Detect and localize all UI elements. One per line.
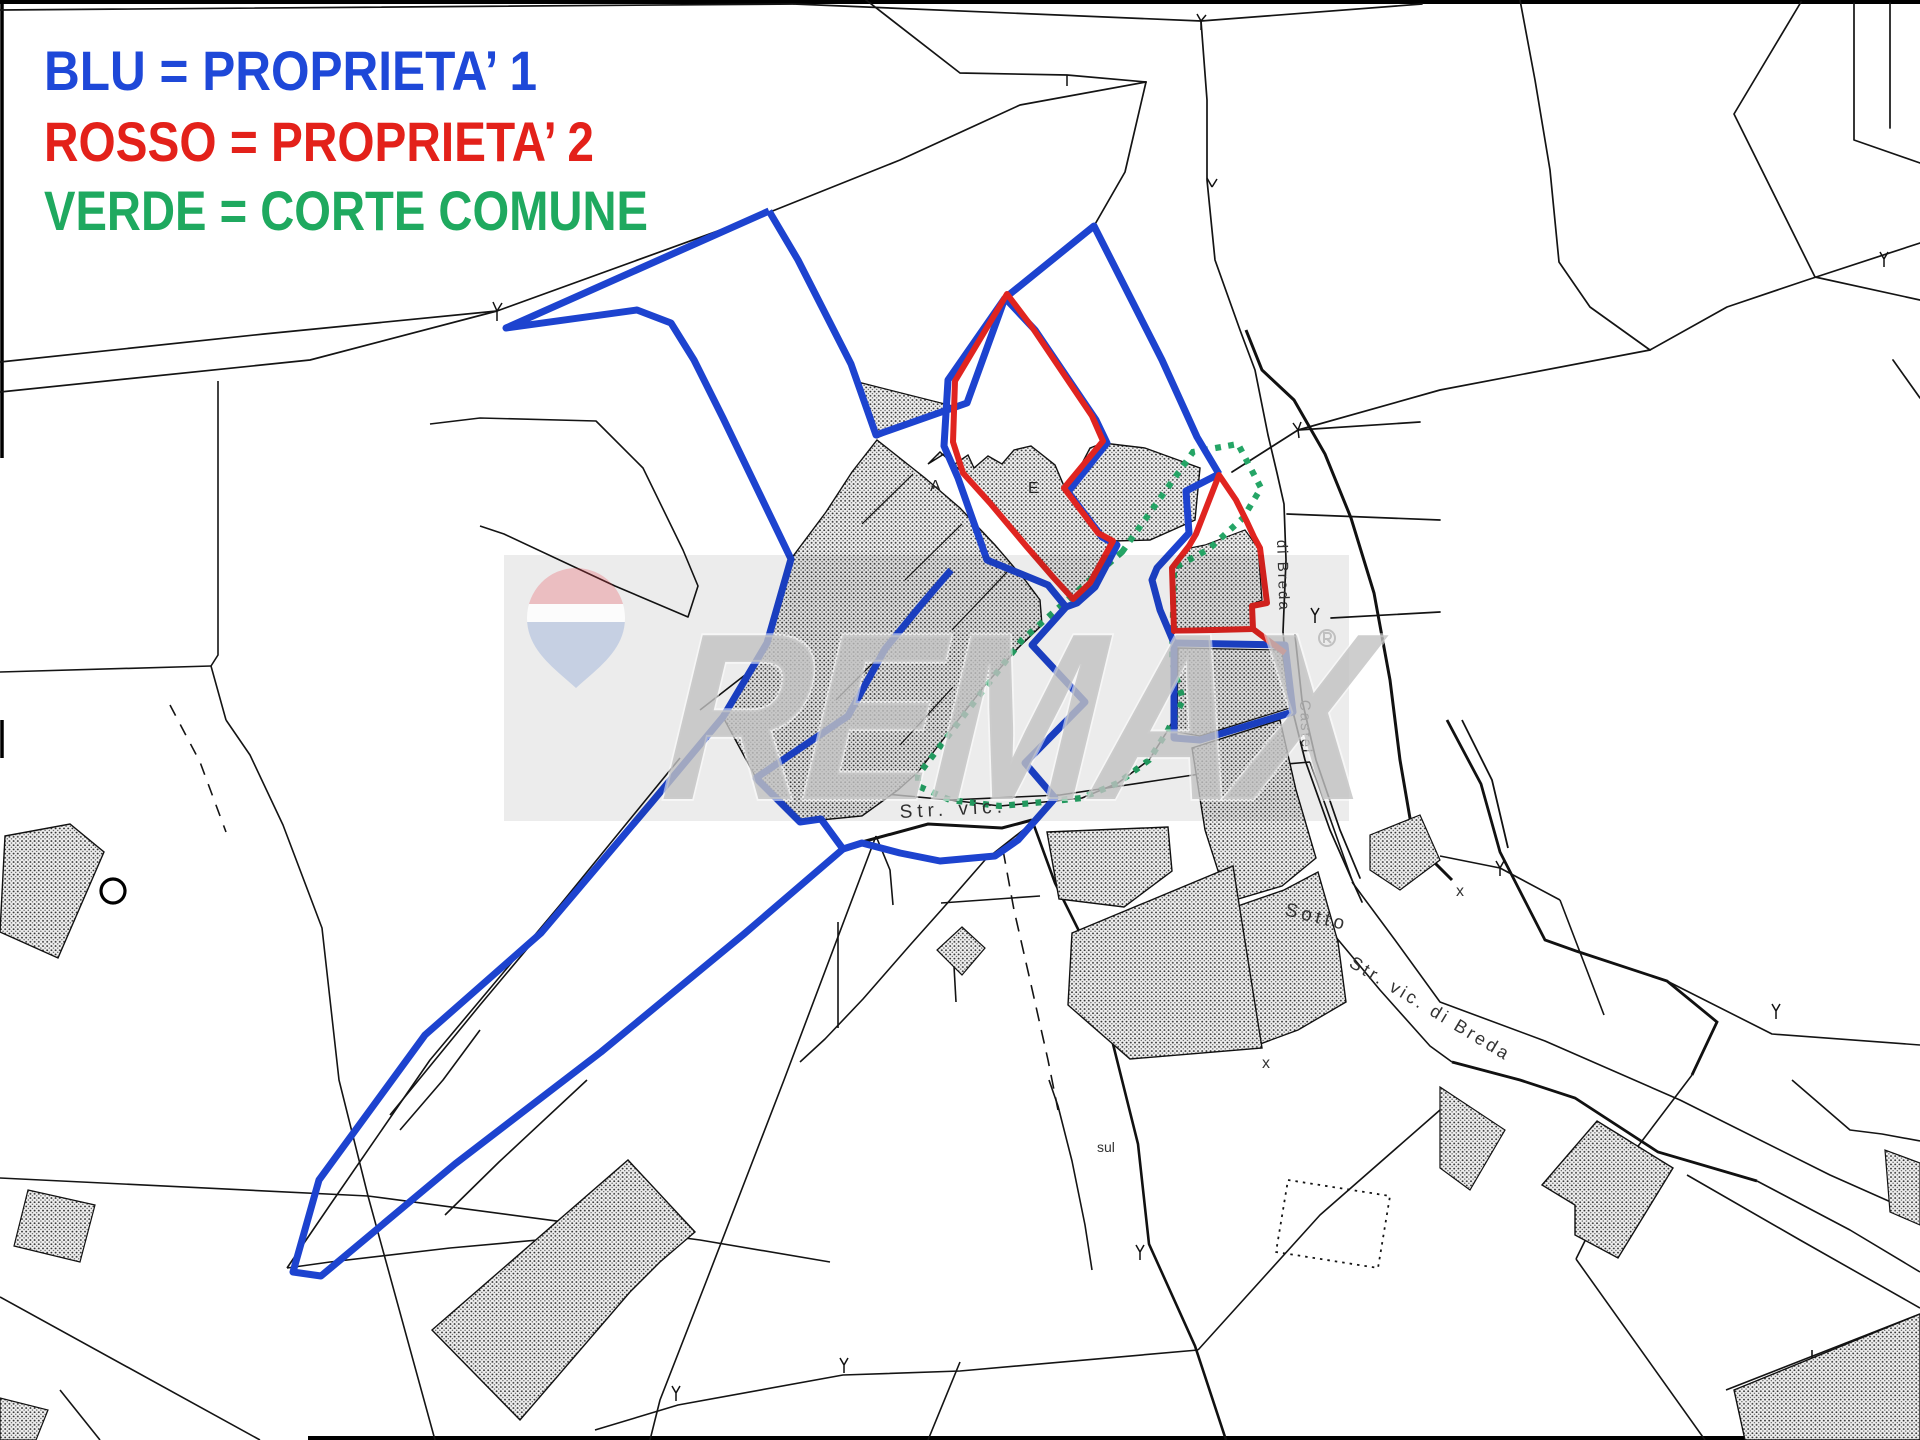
svg-text:BLU = PROPRIETA’ 1: BLU = PROPRIETA’ 1 xyxy=(44,39,537,102)
svg-text:E: E xyxy=(1028,480,1039,497)
svg-text:VERDE = CORTE COMUNE: VERDE = CORTE COMUNE xyxy=(44,179,648,242)
svg-text:REMAX: REMAX xyxy=(638,584,1405,850)
svg-text:ROSSO = PROPRIETA’ 2: ROSSO = PROPRIETA’ 2 xyxy=(44,110,594,173)
svg-text:x: x xyxy=(1262,1055,1270,1072)
svg-text:A: A xyxy=(930,478,941,495)
svg-text:sul: sul xyxy=(1097,1139,1115,1155)
svg-text:x: x xyxy=(1456,883,1464,900)
